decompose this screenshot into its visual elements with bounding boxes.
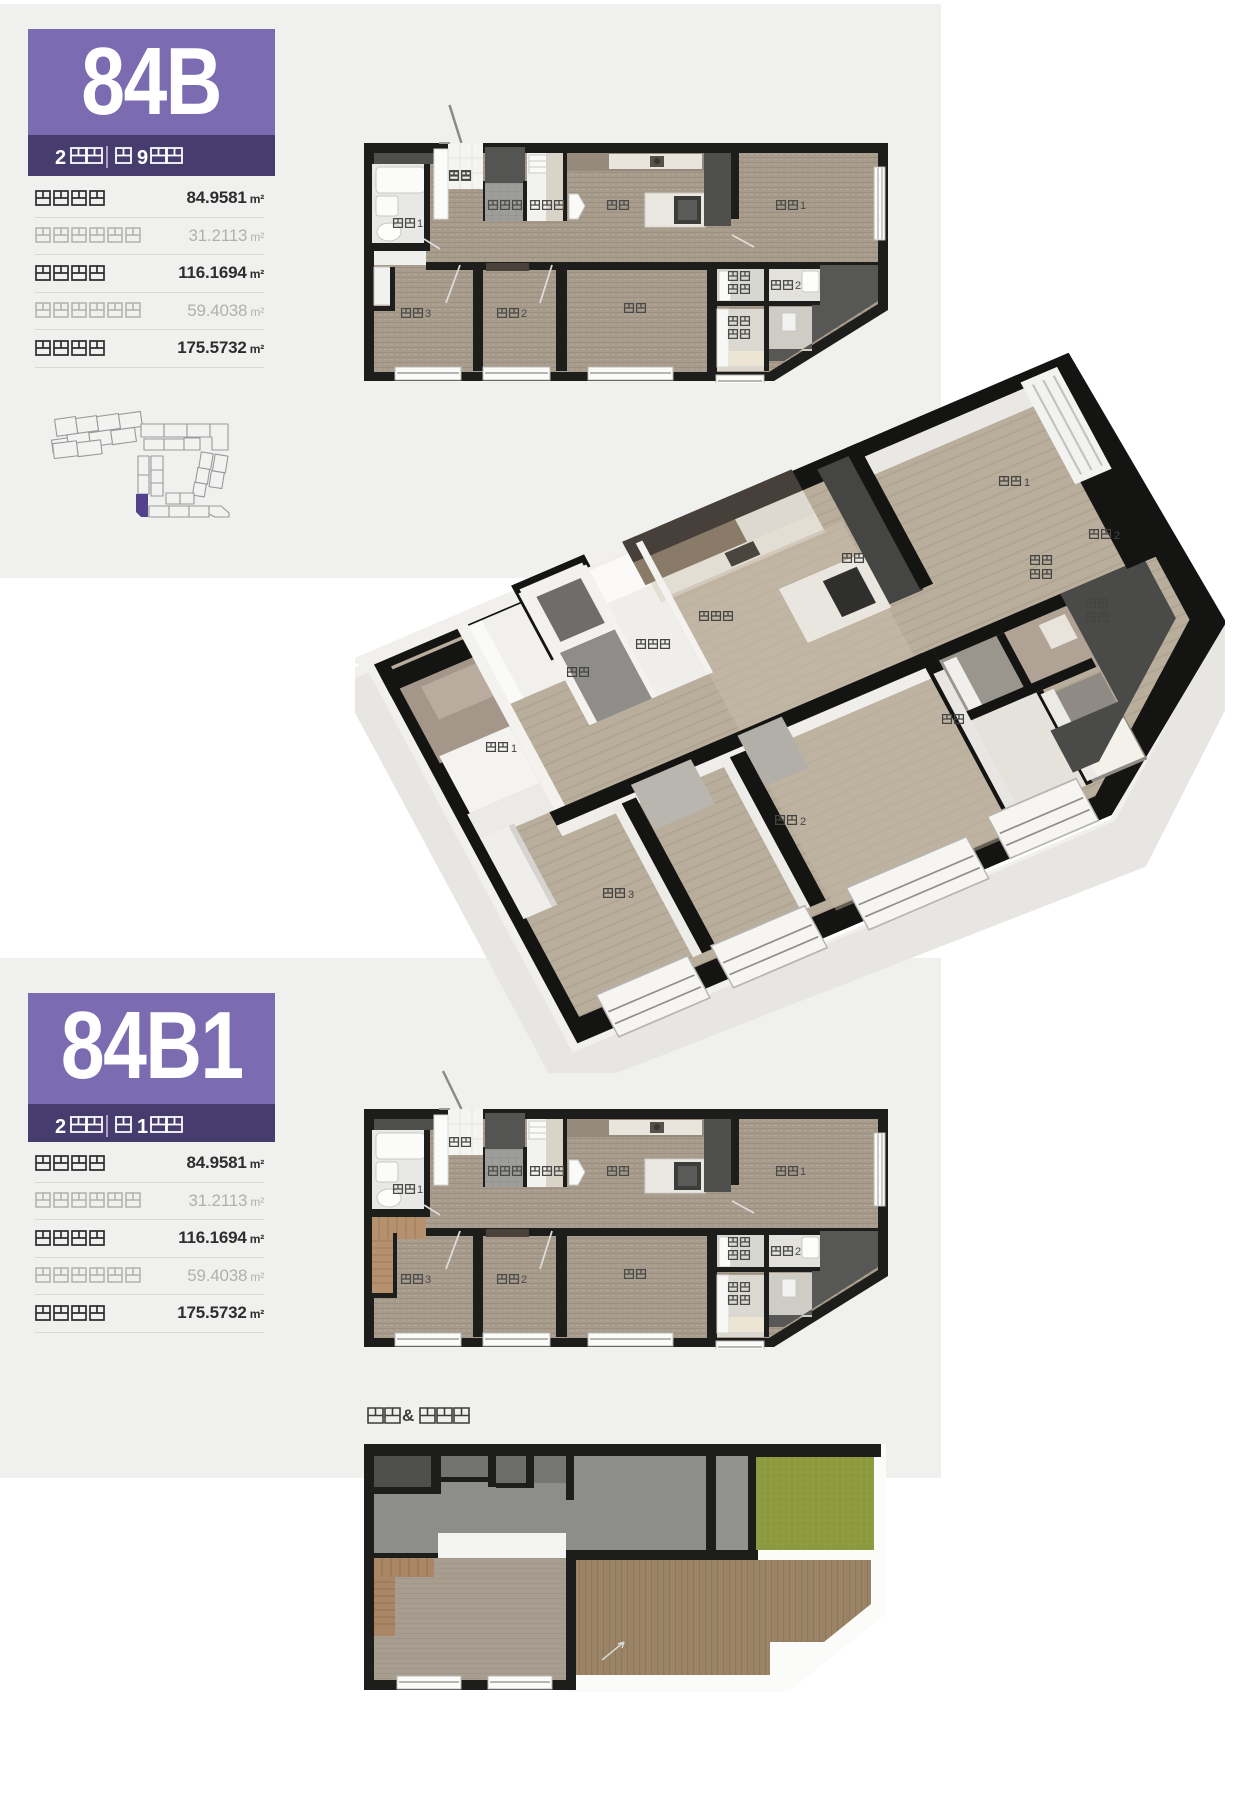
svg-text:1: 1 — [137, 1116, 148, 1138]
svg-text:2: 2 — [55, 147, 66, 169]
svg-text:1: 1 — [1024, 477, 1030, 489]
svg-text:2: 2 — [1114, 530, 1120, 542]
svg-text:9: 9 — [137, 147, 148, 169]
svg-text:2: 2 — [55, 1116, 66, 1138]
svg-text:1: 1 — [511, 743, 517, 755]
svg-text:&: & — [402, 1406, 414, 1425]
svg-text:3: 3 — [628, 889, 634, 901]
svg-text:2: 2 — [800, 816, 806, 828]
